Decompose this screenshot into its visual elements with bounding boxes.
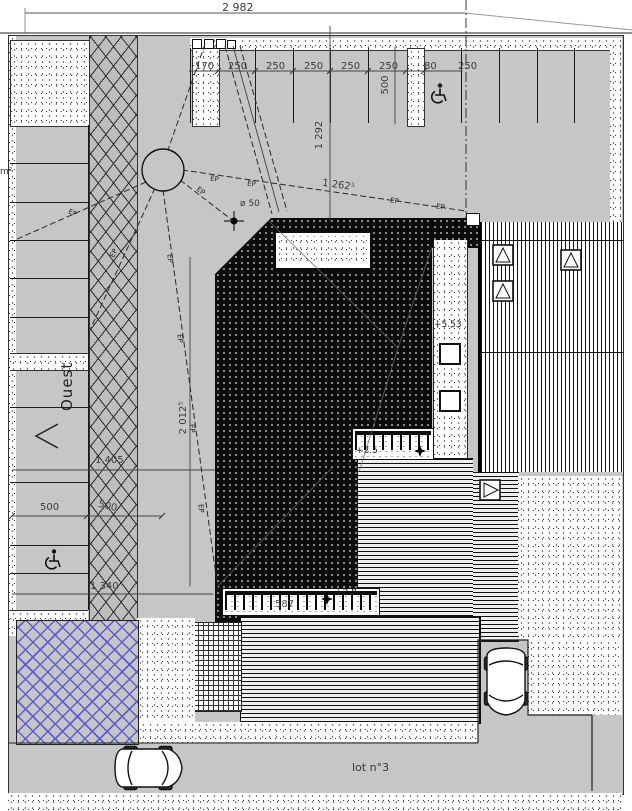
stall-line	[293, 48, 294, 123]
stall-line	[330, 48, 331, 123]
chimney-box	[439, 343, 461, 365]
stall-line	[574, 48, 575, 123]
west-label: Ouest	[58, 361, 74, 411]
stall-line	[368, 48, 369, 123]
sidewalk-strip-right	[610, 38, 622, 250]
gravel-strip-bottom	[8, 793, 622, 811]
area-unit-label: m²	[0, 168, 12, 177]
chimney-box	[439, 390, 461, 412]
ep-label: EP	[436, 203, 446, 211]
ep-label: EP	[210, 175, 220, 183]
car-icon	[483, 645, 529, 719]
car-icon	[112, 745, 186, 791]
access-ramp-hatch	[89, 36, 138, 620]
stall-line	[499, 48, 500, 123]
ep-label: EP	[196, 504, 204, 513]
total-width-dim: 2 982	[222, 2, 254, 13]
stall-divider-line	[10, 240, 88, 241]
stall-divider-line	[10, 163, 88, 164]
lower-terrace-deck	[240, 616, 481, 724]
access-dim: 1 405	[95, 456, 124, 466]
garden-stipple-east	[518, 476, 622, 640]
pergola-upper: +2.5	[352, 428, 434, 460]
ep-label: EP	[165, 254, 173, 263]
row-dim: 250	[266, 62, 285, 72]
stall-divider-line	[10, 317, 88, 318]
stall-pair-dim: 500	[40, 503, 59, 513]
roof-window-icon	[479, 479, 501, 501]
post-marker	[204, 39, 214, 49]
stall-line	[537, 48, 538, 123]
setback-dim: 1 292	[315, 115, 325, 155]
pergola-dim-label: 587	[275, 600, 294, 610]
wheelchair-icon	[42, 548, 62, 572]
sidewalk-strip-top	[190, 38, 614, 51]
roof-level-label: +5.53	[434, 320, 462, 330]
post-marker	[227, 40, 236, 49]
access-dim: 1 340	[90, 582, 119, 592]
lot-number-label: lot n°3	[352, 762, 389, 773]
row-dim: 250	[458, 62, 477, 72]
crossing-strip	[10, 353, 88, 371]
ep-label: EP	[247, 180, 257, 188]
row-dim: 250	[341, 62, 360, 72]
stall-divider-line	[10, 482, 88, 483]
ep-label: EP	[187, 424, 195, 433]
post-marker	[192, 39, 202, 49]
stall-line	[255, 48, 256, 123]
stall-divider-line	[10, 573, 88, 574]
terrace-upper-level-label: +2.5	[356, 446, 378, 456]
row-dim: 80	[424, 62, 437, 72]
roof-opening	[274, 231, 372, 270]
stall-line	[461, 48, 462, 123]
stall-divider-line	[10, 202, 88, 203]
site-plan-page: +5.53 +2.5 587 +2.8 2 982 170 250 250 25…	[0, 0, 632, 811]
ep-label: EP	[390, 197, 400, 205]
narrow-stall	[407, 48, 425, 127]
inspection-box	[466, 213, 480, 226]
pipe-diameter-label: ø 50	[240, 200, 260, 209]
depth-dim: 2 012⁵	[179, 391, 189, 445]
stall-depth-dim: 500	[381, 67, 391, 103]
stall-divider-line	[10, 278, 88, 279]
terrace-lower-level-label: +2.8	[335, 588, 357, 598]
row-dim: 250	[304, 62, 323, 72]
roof-window-icon	[492, 244, 514, 266]
roof-window-icon	[492, 280, 514, 302]
row-dim: 170	[195, 62, 214, 72]
reserved-area-blue-hatch	[16, 620, 139, 745]
eave-line	[481, 240, 623, 241]
post-marker	[216, 39, 226, 49]
stall-divider-line	[10, 545, 88, 546]
roof-window-icon	[560, 249, 582, 271]
row-dim: 250	[228, 62, 247, 72]
planter-stall	[192, 48, 220, 127]
wheelchair-icon	[428, 82, 448, 106]
ep-label: EP	[175, 334, 183, 343]
ridge-line	[481, 352, 623, 353]
garden-stipple-southeast	[528, 640, 622, 715]
stall-divider-line	[10, 407, 88, 408]
trellis-grid	[192, 622, 242, 712]
green-patch-topleft	[10, 40, 90, 127]
stall-line	[190, 48, 191, 123]
gravel-band	[140, 722, 478, 742]
